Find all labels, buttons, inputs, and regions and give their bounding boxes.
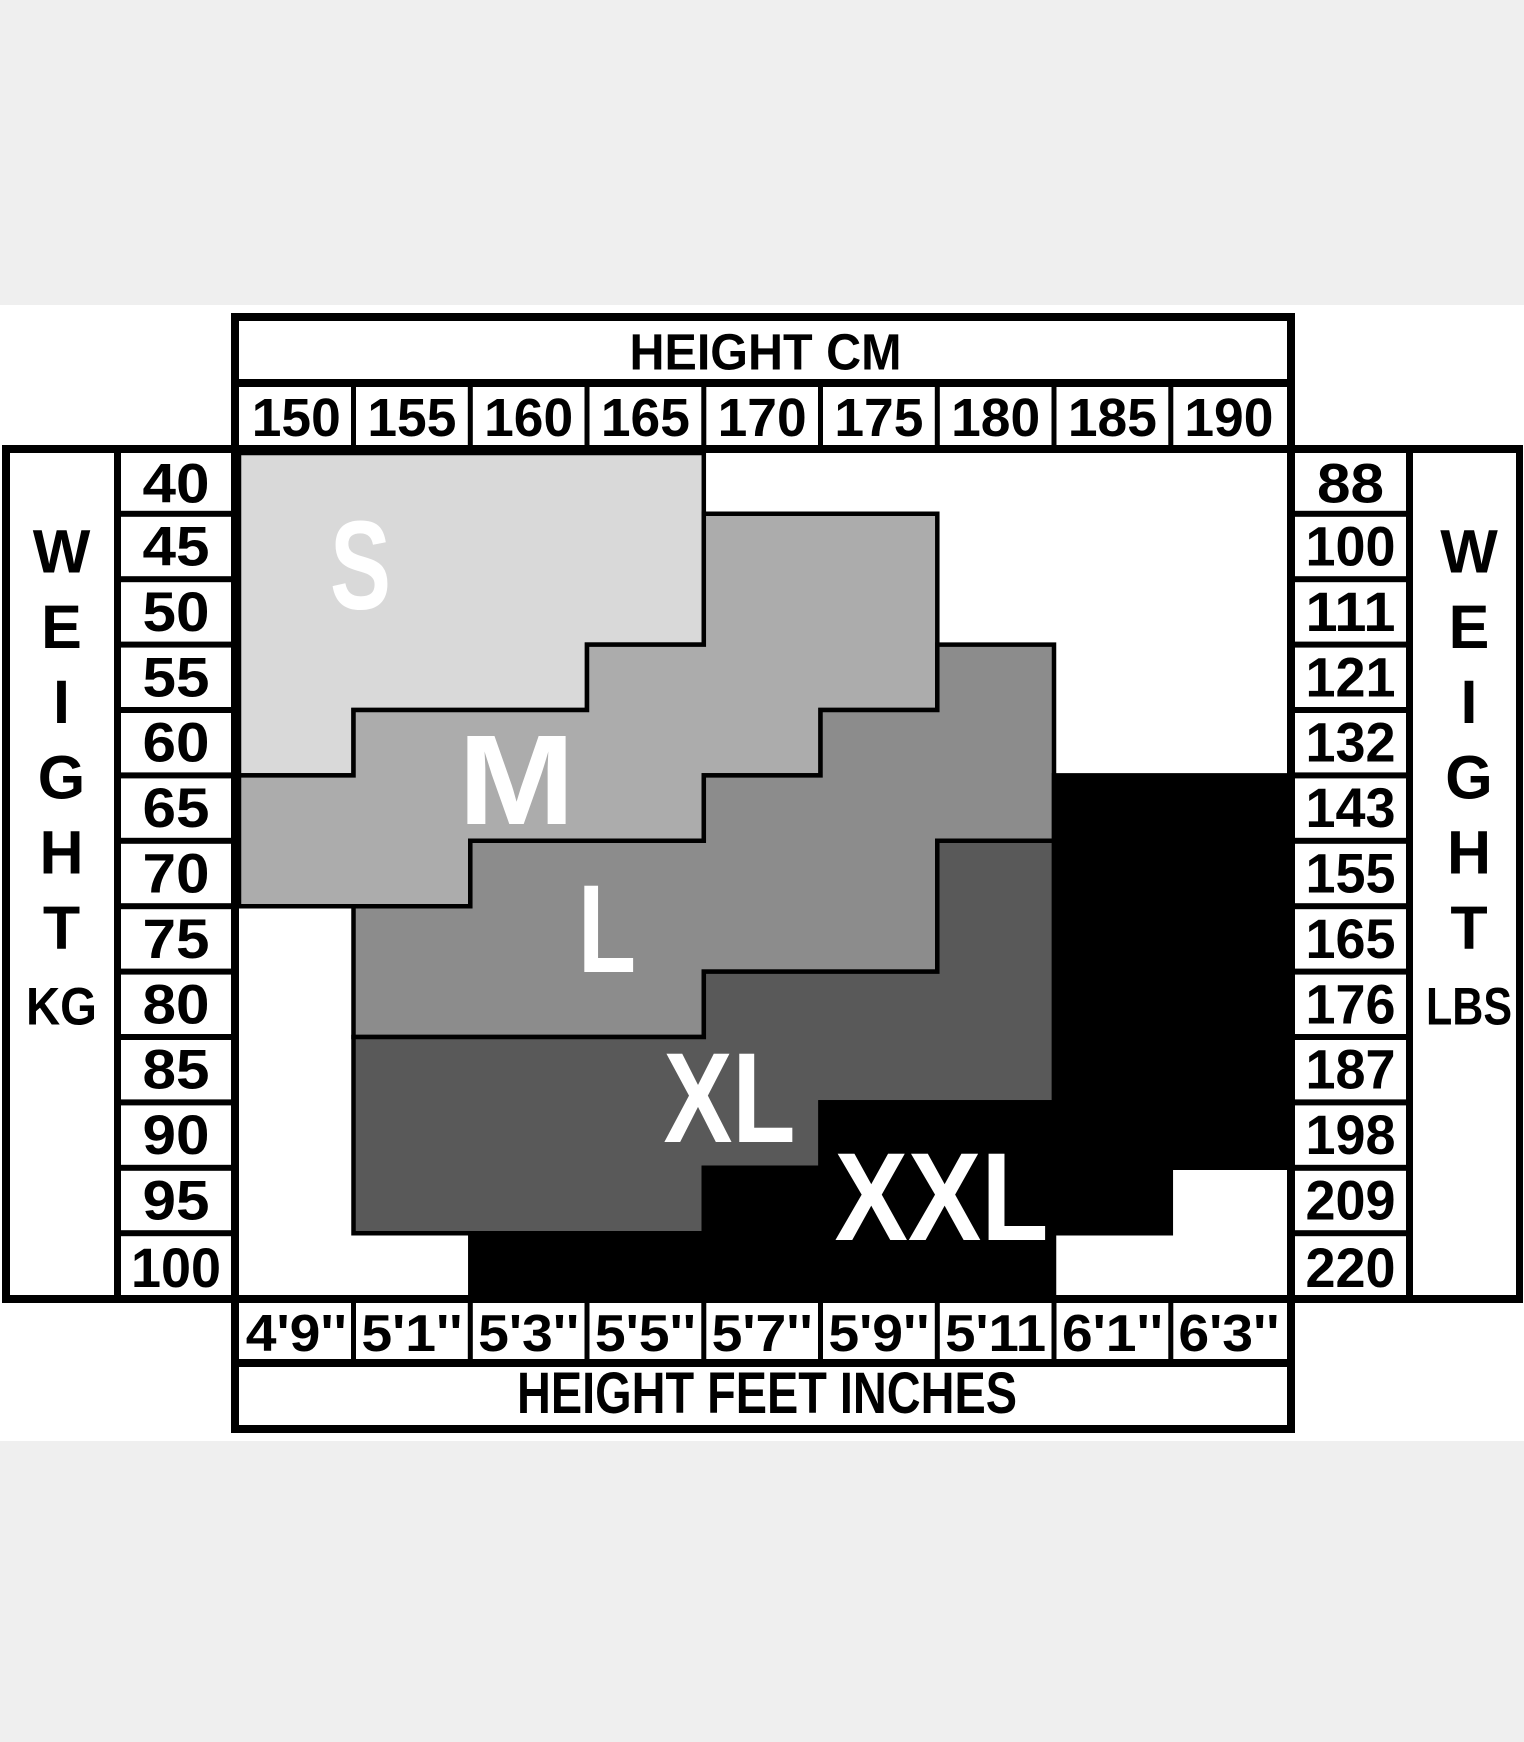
svg-text:HEIGHT CM: HEIGHT CM — [630, 324, 902, 381]
svg-text:170: 170 — [718, 388, 807, 448]
svg-text:111: 111 — [1306, 580, 1396, 643]
svg-text:HEIGHT FEET INCHES: HEIGHT FEET INCHES — [517, 1361, 1017, 1426]
svg-text:T: T — [1450, 894, 1487, 962]
svg-text:88: 88 — [1317, 451, 1384, 514]
svg-text:45: 45 — [143, 515, 210, 578]
svg-text:50: 50 — [143, 580, 210, 643]
svg-text:L: L — [578, 860, 636, 999]
svg-text:176: 176 — [1306, 972, 1396, 1035]
svg-text:155: 155 — [367, 388, 456, 448]
svg-text:5'9'': 5'9'' — [828, 1305, 929, 1363]
svg-text:40: 40 — [143, 451, 210, 514]
svg-text:90: 90 — [143, 1103, 210, 1166]
svg-text:5'1'': 5'1'' — [361, 1305, 462, 1363]
svg-text:I: I — [53, 668, 70, 736]
svg-text:W: W — [33, 518, 91, 586]
svg-text:S: S — [330, 495, 391, 636]
svg-text:100: 100 — [131, 1236, 221, 1299]
svg-text:6'1'': 6'1'' — [1062, 1305, 1163, 1363]
svg-text:85: 85 — [143, 1038, 210, 1101]
svg-text:XL: XL — [664, 1027, 796, 1170]
svg-text:80: 80 — [143, 972, 210, 1035]
svg-text:220: 220 — [1306, 1236, 1396, 1299]
svg-text:5'7'': 5'7'' — [712, 1305, 813, 1363]
svg-text:60: 60 — [143, 711, 210, 774]
svg-text:209: 209 — [1306, 1169, 1396, 1232]
svg-text:H: H — [39, 819, 83, 887]
svg-text:4'9'': 4'9'' — [246, 1305, 347, 1363]
svg-text:5'11: 5'11 — [945, 1305, 1046, 1363]
svg-text:187: 187 — [1306, 1038, 1396, 1101]
svg-text:H: H — [1447, 819, 1491, 887]
svg-text:155: 155 — [1306, 842, 1396, 905]
svg-text:KG: KG — [26, 978, 97, 1037]
svg-text:LBS: LBS — [1426, 978, 1512, 1037]
svg-text:65: 65 — [143, 776, 210, 839]
svg-text:XXL: XXL — [835, 1128, 1049, 1267]
svg-text:100: 100 — [1306, 515, 1396, 578]
svg-text:5'3'': 5'3'' — [478, 1305, 579, 1363]
svg-text:185: 185 — [1068, 388, 1157, 448]
svg-text:55: 55 — [143, 645, 210, 708]
svg-text:143: 143 — [1306, 776, 1396, 839]
svg-text:175: 175 — [834, 388, 923, 448]
svg-text:G: G — [1445, 743, 1492, 811]
svg-text:M: M — [458, 709, 575, 852]
svg-text:198: 198 — [1306, 1103, 1396, 1166]
svg-text:75: 75 — [143, 907, 210, 970]
svg-text:5'5'': 5'5'' — [595, 1305, 696, 1363]
svg-text:6'3'': 6'3'' — [1178, 1305, 1279, 1363]
svg-text:I: I — [1461, 668, 1478, 736]
svg-text:T: T — [43, 894, 80, 962]
svg-text:150: 150 — [252, 388, 341, 448]
svg-text:E: E — [41, 593, 82, 661]
svg-text:E: E — [1449, 593, 1490, 661]
svg-text:165: 165 — [1306, 907, 1396, 970]
svg-text:180: 180 — [951, 388, 1040, 448]
svg-text:95: 95 — [143, 1169, 210, 1232]
svg-text:132: 132 — [1306, 711, 1396, 774]
svg-text:70: 70 — [143, 842, 210, 905]
svg-text:G: G — [38, 743, 85, 811]
svg-text:121: 121 — [1306, 645, 1396, 708]
svg-text:160: 160 — [484, 388, 573, 448]
svg-text:W: W — [1440, 518, 1498, 586]
svg-text:165: 165 — [601, 388, 690, 448]
svg-text:190: 190 — [1184, 388, 1273, 448]
